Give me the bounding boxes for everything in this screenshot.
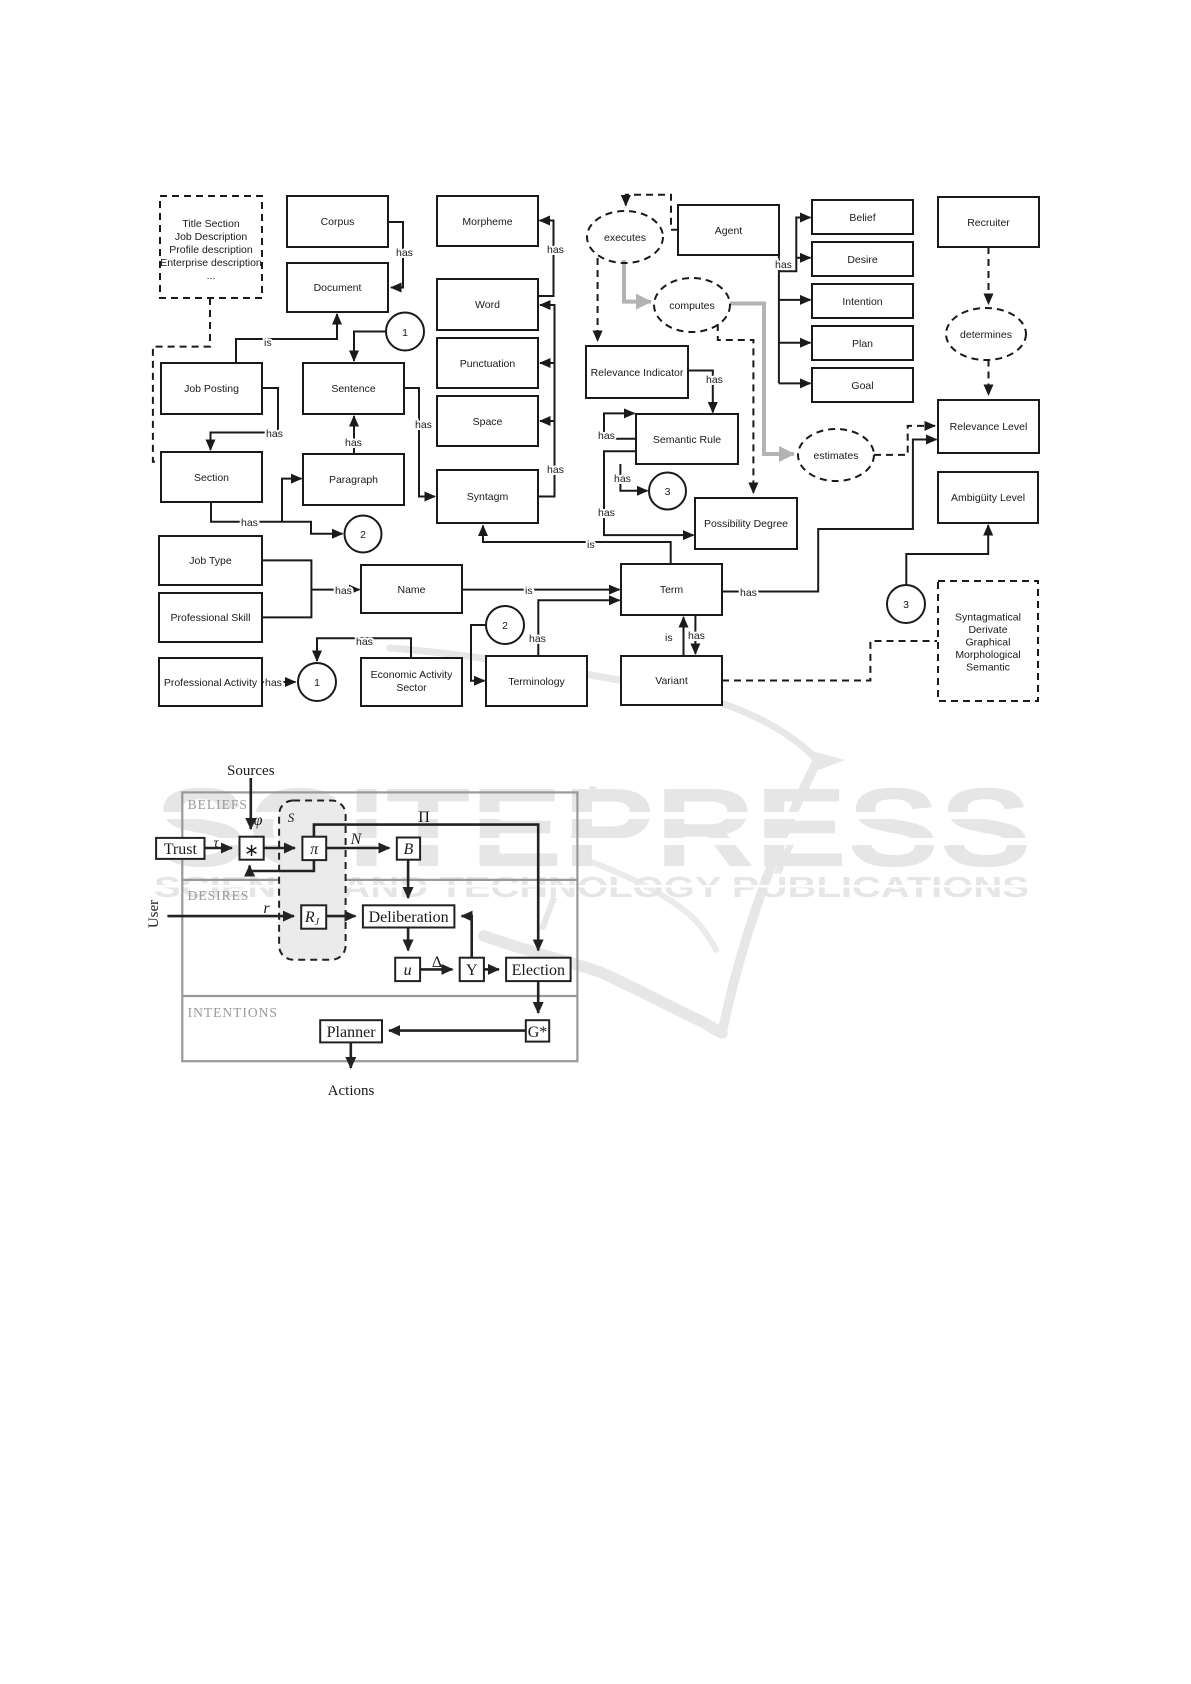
svg-text:has: has [356,636,373,648]
svg-text:2: 2 [502,620,508,632]
svg-text:has: has [335,585,352,597]
svg-text:Graphical: Graphical [966,637,1011,649]
svg-text:Π: Π [418,809,430,826]
svg-text:1: 1 [314,677,320,689]
svg-text:Name: Name [397,584,425,596]
svg-text:Space: Space [473,416,503,428]
svg-text:has: has [598,507,615,519]
svg-text:has: has [266,428,283,440]
svg-text:computes: computes [669,300,715,312]
svg-text:has: has [529,633,546,645]
svg-text:has: has [598,430,615,442]
svg-text:INTENTIONS: INTENTIONS [188,1005,278,1020]
svg-text:is: is [665,632,673,644]
svg-text:u: u [404,962,412,979]
svg-text:Intention: Intention [842,296,882,308]
svg-text:Enterprise description: Enterprise description [160,257,262,269]
svg-text:φ: φ [254,812,263,829]
svg-text:...: ... [207,270,216,282]
svg-text:Sources: Sources [227,763,275,779]
svg-text:Sector: Sector [396,682,427,694]
svg-text:Punctuation: Punctuation [460,358,516,370]
svg-text:has: has [415,419,432,431]
svg-text:Agent: Agent [715,225,743,237]
svg-text:Corpus: Corpus [321,216,355,228]
svg-text:Section: Section [194,472,229,484]
svg-text:has: has [775,259,792,271]
svg-text:Belief: Belief [849,212,875,224]
svg-text:Job Description: Job Description [175,231,248,243]
svg-text:DESIRES: DESIRES [188,888,250,903]
svg-text:3: 3 [665,486,671,498]
svg-text:Goal: Goal [851,380,873,392]
svg-text:Paragraph: Paragraph [329,474,378,486]
svg-text:Possibility Degree: Possibility Degree [704,518,788,530]
svg-text:Derivate: Derivate [968,624,1007,636]
svg-text:has: has [547,464,564,476]
svg-text:Election: Election [512,962,565,979]
svg-text:N: N [350,831,363,848]
svg-text:Job Posting: Job Posting [184,383,239,395]
svg-text:executes: executes [604,232,646,244]
svg-text:Syntagmatical: Syntagmatical [955,612,1021,624]
svg-text:Trust: Trust [164,841,198,858]
svg-text:r: r [263,900,270,917]
svg-text:is: is [587,539,595,551]
svg-text:Morphological: Morphological [955,649,1020,661]
svg-text:Δ: Δ [432,954,442,971]
svg-text:Semantic Rule: Semantic Rule [653,434,721,446]
svg-text:Sentence: Sentence [331,383,376,395]
svg-text:3: 3 [903,599,909,611]
svg-text:has: has [706,374,723,386]
svg-text:Morpheme: Morpheme [462,216,512,228]
svg-text:π: π [310,841,319,858]
svg-text:Word: Word [475,299,500,311]
svg-text:Variant: Variant [655,675,688,687]
svg-text:Profile description: Profile description [169,244,253,256]
svg-text:Professional Activity: Professional Activity [164,677,258,689]
svg-text:has: has [345,437,362,449]
svg-text:S: S [288,810,295,825]
svg-text:BELIEFS: BELIEFS [188,797,248,812]
svg-text:Plan: Plan [852,338,873,350]
svg-text:Desire: Desire [847,254,878,266]
svg-text:Terminology: Terminology [508,676,565,688]
svg-text:Title Section: Title Section [182,218,240,230]
svg-text:∗: ∗ [244,840,259,860]
svg-text:has: has [614,473,631,485]
svg-text:Term: Term [660,584,684,596]
svg-text:has: has [241,517,258,529]
svg-text:Job Type: Job Type [189,555,232,567]
svg-text:B: B [404,841,414,858]
svg-text:has: has [265,677,282,689]
svg-text:estimates: estimates [814,450,859,462]
svg-text:Planner: Planner [327,1024,377,1041]
svg-text:Actions: Actions [328,1083,375,1099]
svg-text:Deliberation: Deliberation [369,909,449,926]
svg-text:Syntagm: Syntagm [467,491,509,503]
svg-text:Relevance Indicator: Relevance Indicator [591,367,684,379]
svg-text:determines: determines [960,329,1012,341]
svg-text:Recruiter: Recruiter [967,217,1010,229]
svg-text:has: has [740,587,757,599]
svg-text:Document: Document [314,282,362,294]
svg-text:has: has [547,244,564,256]
svg-text:User: User [146,900,162,928]
svg-text:is: is [525,585,533,597]
svg-text:Semantic: Semantic [966,662,1010,674]
svg-text:1: 1 [402,327,408,339]
svg-text:Relevance Level: Relevance Level [950,421,1028,433]
svg-text:Ambigüity Level: Ambigüity Level [951,492,1025,504]
svg-text:2: 2 [360,529,366,541]
svg-text:Economic Activity: Economic Activity [371,669,453,681]
svg-text:has: has [396,247,413,259]
svg-text:Professional Skill: Professional Skill [171,612,251,624]
svg-text:Υ: Υ [466,962,478,979]
svg-text:has: has [688,630,705,642]
svg-text:G*: G* [528,1024,548,1041]
svg-text:is: is [264,337,272,349]
